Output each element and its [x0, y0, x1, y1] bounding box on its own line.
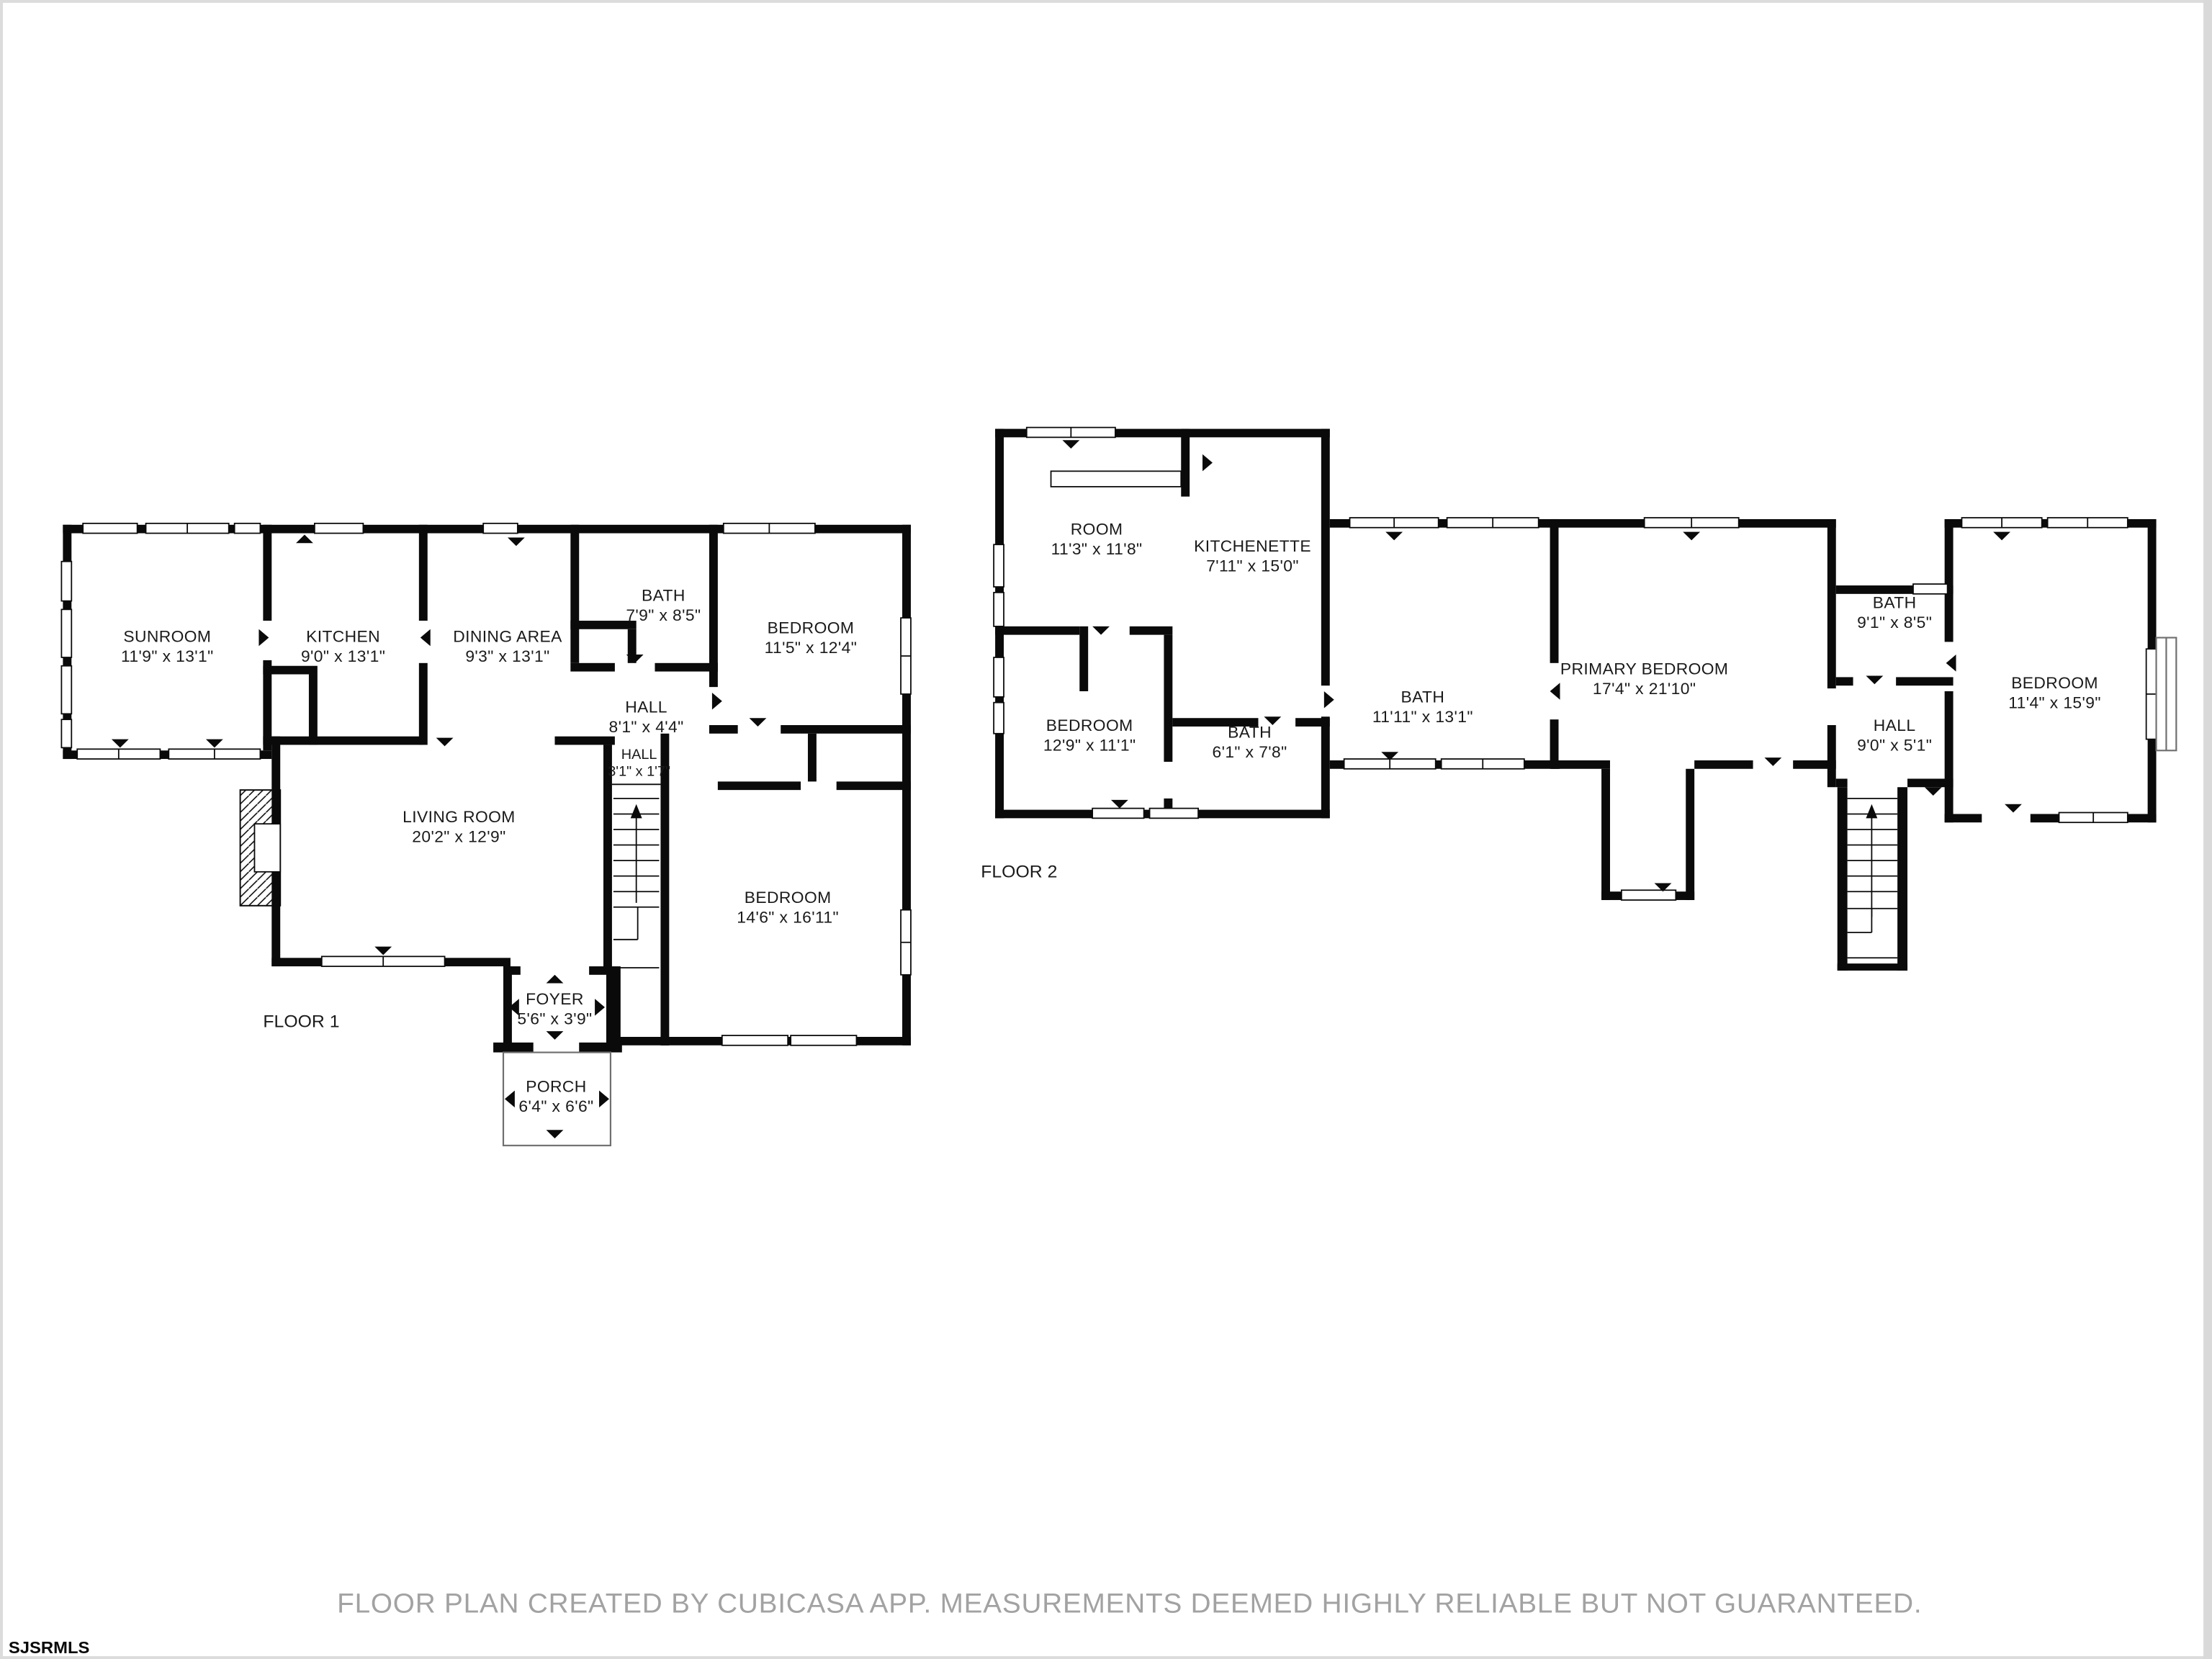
room-name: HALL [621, 747, 657, 763]
room-name: HALL [1874, 716, 1916, 734]
room-dims: 9'1" x 8'5" [1857, 613, 1932, 631]
footer-disclaimer: FLOOR PLAN CREATED BY CUBICASA APP. MEAS… [337, 1588, 1922, 1619]
room-label-bedroom-f2-right: BEDROOM 11'4" x 15'9" [2008, 673, 2101, 711]
room-label-dining-area: DINING AREA 9'3" x 13'1" [453, 627, 562, 665]
room-label-bath-small: BATH 6'1" x 7'8" [1212, 723, 1287, 761]
room-dims: 9'0" x 5'1" [1857, 735, 1932, 754]
scrollbar[interactable] [2203, 0, 2212, 1659]
floor2-plan: ROOM 11'3" x 11'8" KITCHENETTE 7'11" x 1… [981, 428, 2176, 971]
room-label-kitchen: KITCHEN 9'0" x 13'1" [301, 627, 385, 665]
floor2-door-arrows [1062, 440, 2021, 891]
staircase-floor2 [1848, 799, 1898, 958]
room-dims: 20'2" x 12'9" [412, 827, 505, 846]
room-name: DINING AREA [453, 627, 562, 646]
room-dims: 11'3" x 11'8" [1051, 539, 1143, 558]
room-dims: 17'4" x 21'10" [1593, 679, 1696, 698]
room-dims: 7'9" x 8'5" [626, 606, 701, 624]
room-name: BATH [1228, 723, 1272, 742]
room-label-bedroom-se: BEDROOM 14'6" x 16'11" [737, 888, 839, 926]
room-label-porch: PORCH 6'4" x 6'6" [518, 1077, 593, 1115]
room-name: BEDROOM [768, 619, 855, 637]
floor2-walls [995, 429, 2156, 971]
room-dims: 11'11" x 13'1" [1372, 707, 1473, 726]
room-name: BATH [1873, 593, 1917, 612]
room-dims: 11'5" x 12'4" [765, 638, 858, 657]
room-name: SUNROOM [123, 627, 211, 646]
room-name: KITCHENETTE [1194, 536, 1311, 555]
room-dims: 6'4" x 6'6" [518, 1097, 593, 1115]
room-label-room: ROOM 11'3" x 11'8" [1051, 520, 1143, 558]
kitchenette-counter [1051, 471, 1182, 487]
room-label-bedroom-f2-left: BEDROOM 12'9" x 11'1" [1043, 716, 1136, 754]
room-dims: 6'1" x 7'8" [1212, 742, 1287, 761]
room-name: KITCHEN [306, 627, 380, 646]
staircase-floor1 [612, 784, 661, 968]
room-label-bath-floor1: BATH 7'9" x 8'5" [626, 586, 701, 624]
room-label-bath-f2-right: BATH 9'1" x 8'5" [1857, 593, 1932, 631]
floor1-plan: SUNROOM 11'9" x 13'1" KITCHEN 9'0" x 13'… [61, 523, 911, 1146]
room-dims: 3'1" x 1'7" [608, 764, 670, 780]
room-label-hall-f2: HALL 9'0" x 5'1" [1857, 716, 1932, 754]
room-name: BEDROOM [2011, 673, 2098, 692]
room-label-bath-large: BATH 11'11" x 13'1" [1372, 688, 1473, 726]
floor2-title: FLOOR 2 [981, 863, 1057, 882]
room-label-foyer: FOYER 5'6" x 3'9" [517, 989, 592, 1028]
floor1-title: FLOOR 1 [263, 1012, 339, 1031]
room-dims: 7'11" x 15'0" [1206, 557, 1299, 575]
room-name: LIVING ROOM [403, 807, 516, 826]
floor2-labels: ROOM 11'3" x 11'8" KITCHENETTE 7'11" x 1… [981, 520, 2101, 882]
floor-plan-page: SUNROOM 11'9" x 13'1" KITCHEN 9'0" x 13'… [0, 0, 2212, 1659]
room-label-kitchenette: KITCHENETTE 7'11" x 15'0" [1194, 536, 1311, 575]
room-dims: 11'4" x 15'9" [2008, 693, 2101, 712]
room-name: HALL [625, 698, 667, 716]
room-name: BATH [642, 586, 685, 605]
room-name: FOYER [526, 989, 584, 1008]
page-border-bottom [0, 1656, 2212, 1659]
room-label-living-room: LIVING ROOM 20'2" x 12'9" [403, 807, 516, 845]
room-dims: 14'6" x 16'11" [737, 907, 839, 926]
room-name: PRIMARY BEDROOM [1560, 660, 1728, 678]
room-dims: 8'1" x 4'4" [608, 717, 683, 736]
floor-plan-drawing: SUNROOM 11'9" x 13'1" KITCHEN 9'0" x 13'… [0, 0, 2212, 1659]
page-border-top [0, 0, 2212, 3]
room-name: BEDROOM [1046, 716, 1133, 734]
room-name: PORCH [526, 1077, 586, 1096]
room-name: ROOM [1071, 520, 1123, 539]
fireplace [240, 790, 281, 906]
room-name: BEDROOM [745, 888, 832, 907]
mls-watermark: SJSRMLS [9, 1639, 89, 1658]
room-label-primary-bedroom: PRIMARY BEDROOM 17'4" x 21'10" [1560, 660, 1728, 698]
page-border-left [0, 0, 3, 1659]
room-label-sunroom: SUNROOM 11'9" x 13'1" [121, 627, 214, 665]
room-dims: 9'3" x 13'1" [465, 647, 549, 665]
room-dims: 9'0" x 13'1" [301, 647, 385, 665]
room-dims: 12'9" x 11'1" [1043, 735, 1136, 754]
room-name: BATH [1401, 688, 1444, 706]
floor1-walls [63, 525, 911, 1053]
room-dims: 11'9" x 13'1" [121, 647, 214, 665]
room-label-hall-floor1: HALL 8'1" x 4'4" [608, 698, 683, 736]
room-dims: 5'6" x 3'9" [517, 1010, 592, 1028]
room-label-bedroom-ne: BEDROOM 11'5" x 12'4" [765, 619, 858, 657]
